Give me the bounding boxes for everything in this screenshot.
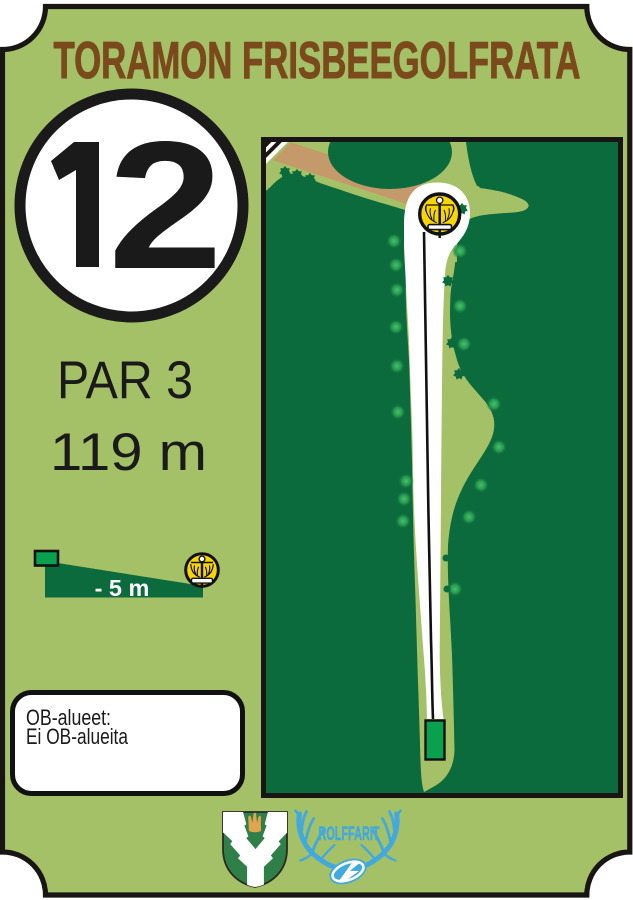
svg-text:119 m: 119 m: [50, 423, 207, 482]
svg-text:Ei OB-alueita: Ei OB-alueita: [26, 724, 129, 749]
svg-text:- 5 m: - 5 m: [95, 575, 150, 601]
svg-text:PAR 3: PAR 3: [57, 351, 193, 410]
svg-text:2: 2: [108, 104, 223, 307]
svg-text:TORAMON FRISBEEGOLFRATA: TORAMON FRISBEEGOLFRATA: [54, 32, 581, 90]
svg-text:ROLFFARIT: ROLFFARIT: [319, 823, 380, 845]
